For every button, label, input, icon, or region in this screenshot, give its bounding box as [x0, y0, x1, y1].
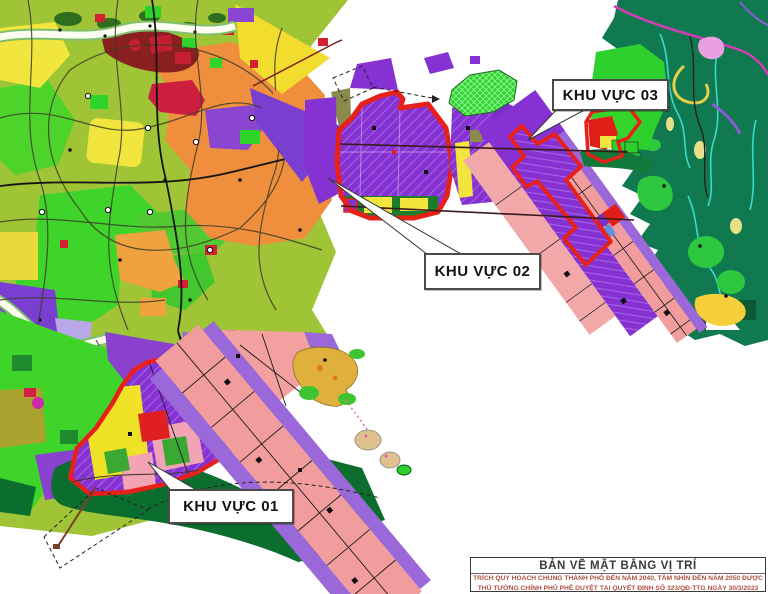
drawing-title: BẢN VẼ MẶT BẰNG VỊ TRÍ	[471, 558, 765, 574]
area-label-text: KHU VỰC 01	[183, 498, 279, 515]
drawing-note-line2: THỦ TƯỚNG CHÍNH PHỦ PHÊ DUYỆT TẠI QUYẾT …	[471, 584, 765, 594]
area-label-khu-vuc-03[interactable]: KHU VỰC 03	[552, 79, 669, 111]
area-label-text: KHU VỰC 02	[435, 263, 531, 280]
zone-khu-vuc-02[interactable]	[305, 58, 452, 218]
drawing-note-line1: TRÍCH QUY HOẠCH CHUNG THÀNH PHỐ ĐẾN NĂM …	[471, 574, 765, 584]
title-block: BẢN VẼ MẶT BẰNG VỊ TRÍ TRÍCH QUY HOẠCH C…	[470, 557, 766, 592]
planning-map-canvas[interactable]: KHU VỰC 01 KHU VỰC 02 KHU VỰC 03 BẢN VẼ …	[0, 0, 768, 594]
area-label-khu-vuc-02[interactable]: KHU VỰC 02	[424, 253, 541, 290]
area-label-text: KHU VỰC 03	[563, 87, 659, 104]
area-label-khu-vuc-01[interactable]: KHU VỰC 01	[168, 489, 294, 524]
